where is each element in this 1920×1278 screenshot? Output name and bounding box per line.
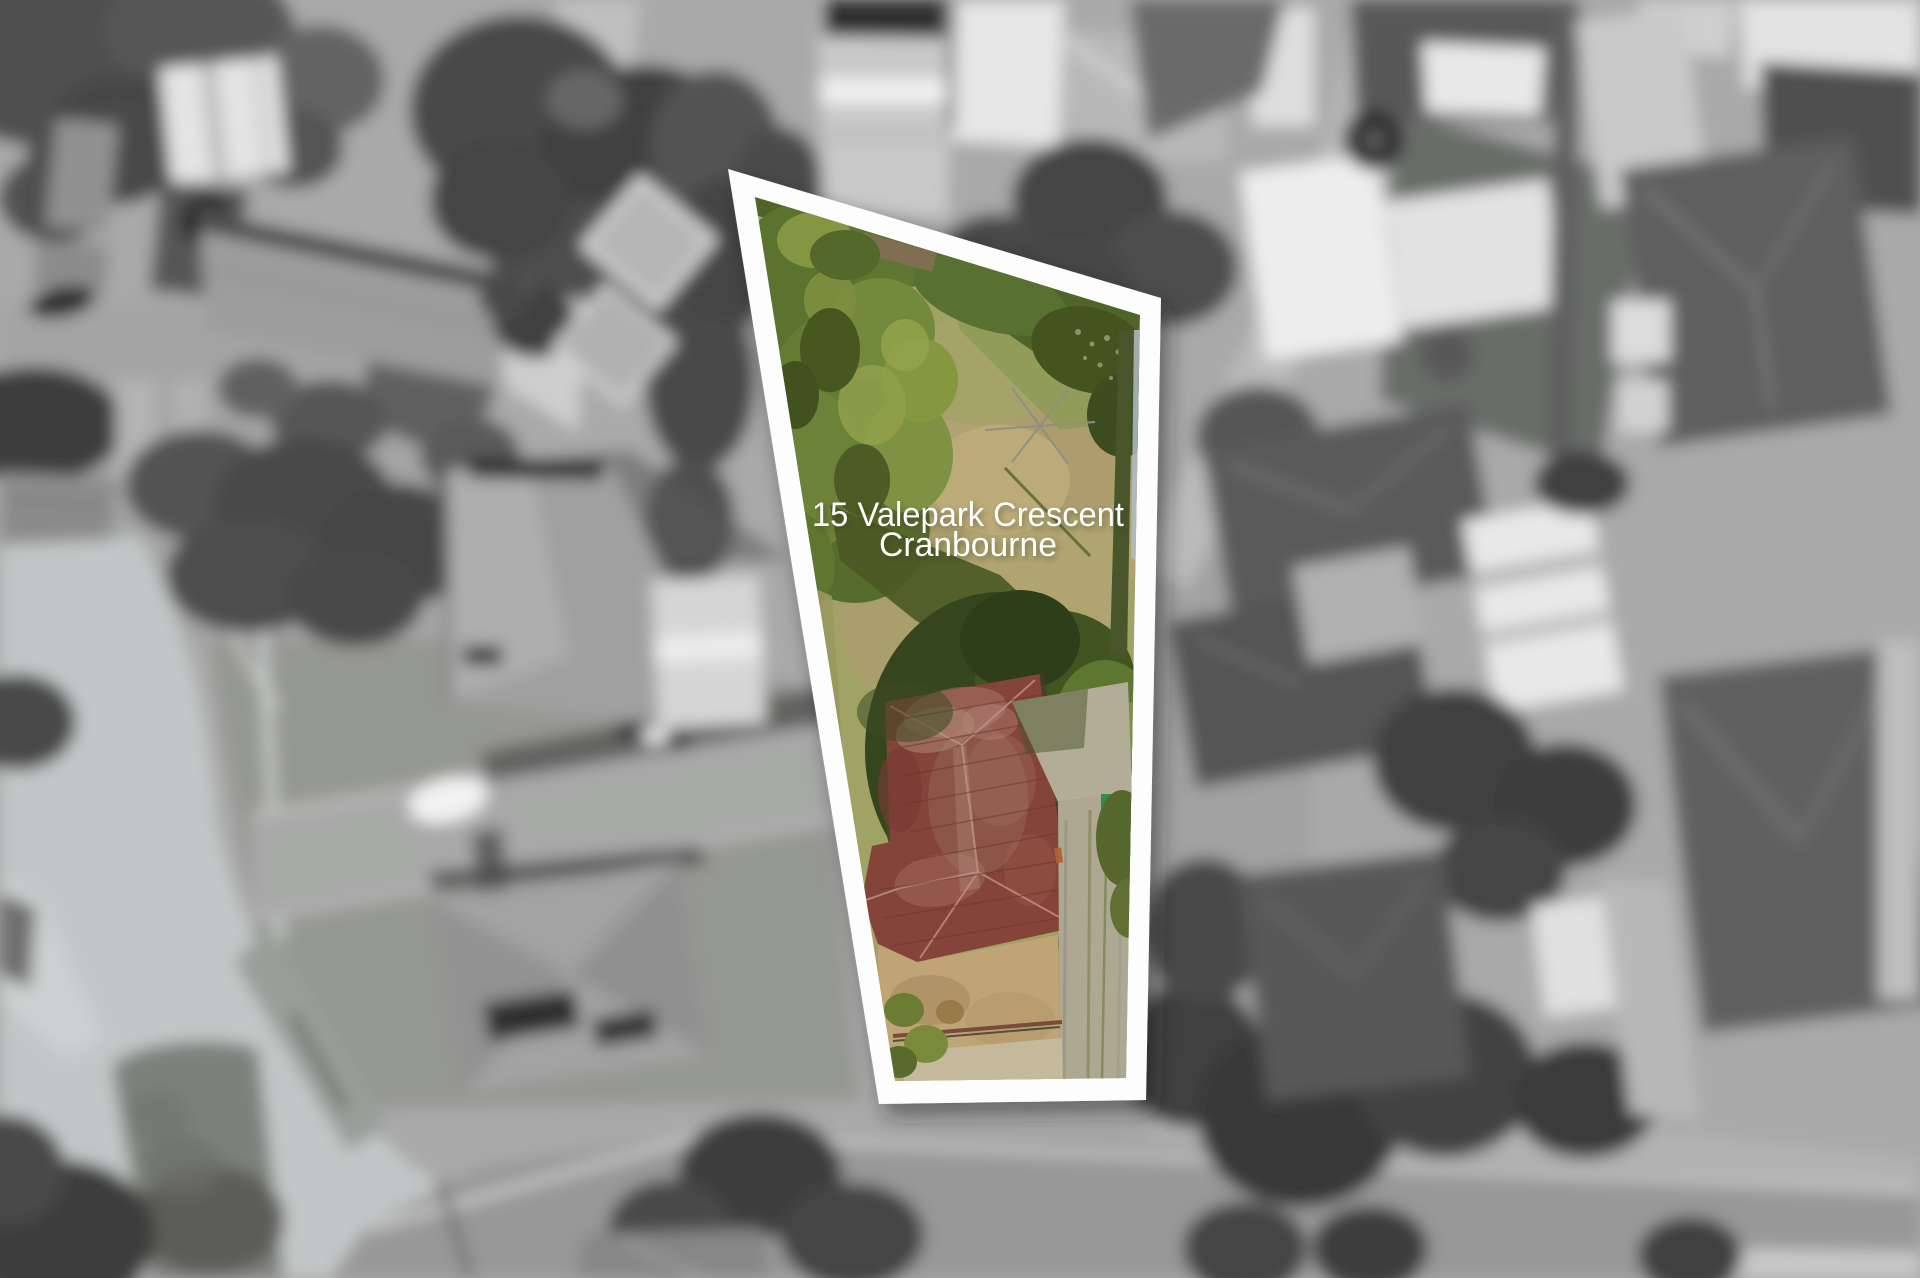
svg-text:Cranbourne: Cranbourne [879,526,1057,564]
